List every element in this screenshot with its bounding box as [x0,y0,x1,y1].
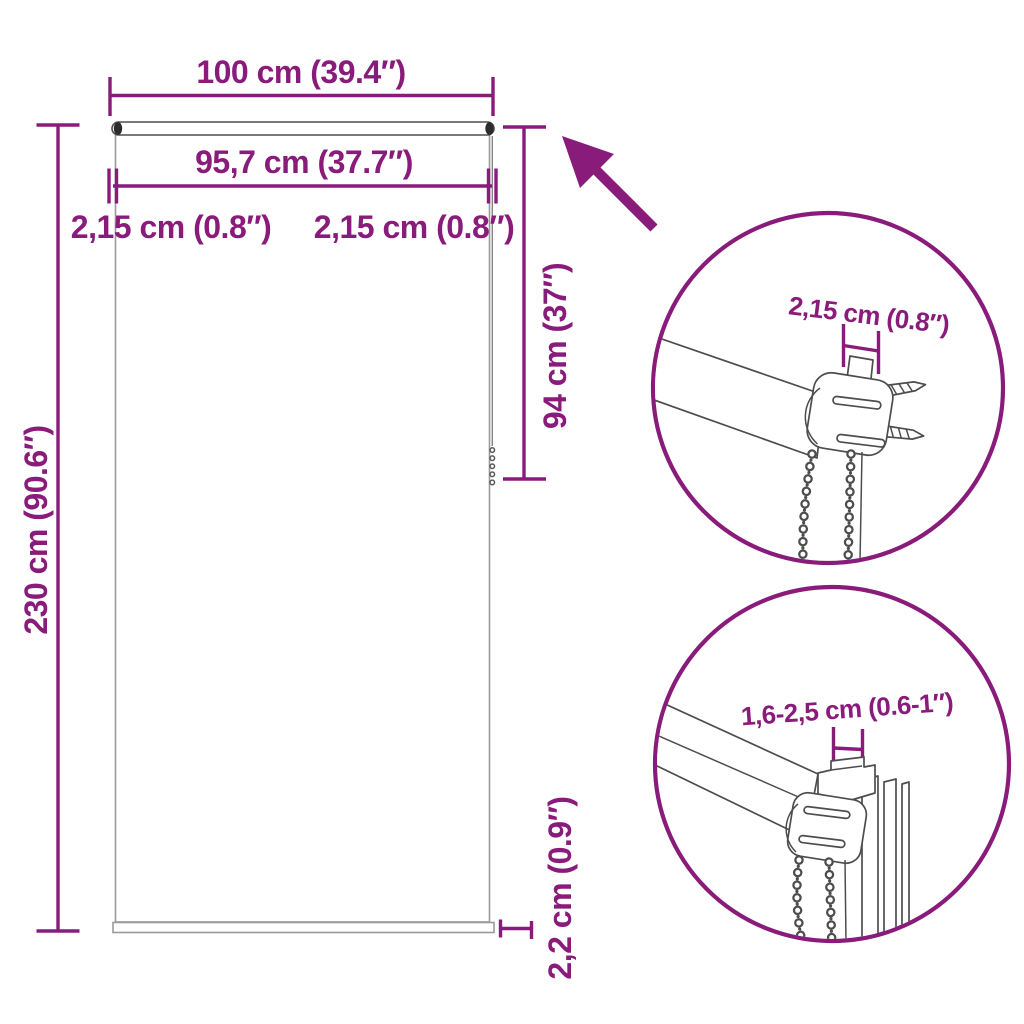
diagram-canvas [0,0,1024,1024]
cord-line [860,452,862,562]
dim-label-total-height: 230 cm (90.6″) [20,425,52,634]
dim-label-drop-height: 94 cm (37″) [539,263,571,429]
mount-bracket [785,791,868,866]
detail-circle-bottom [624,587,1009,950]
cord-line [845,860,846,942]
bead-chain-left [803,454,812,562]
bead-chain-right [829,862,832,948]
fabric-panel [116,134,490,922]
tube-end-cap-left [114,122,122,135]
dim-label-total-width: 100 cm (39.4″) [196,56,405,88]
tube-end-cap-right [485,122,493,135]
clamp-hook [818,757,875,801]
dim-label-left-offset: 2,15 cm (0.8″) [71,211,271,243]
bottom-bar [113,923,494,933]
dim-label-bottom-bar: 2,2 cm (0.9″) [544,796,576,979]
window-frame [862,776,909,950]
top-tube [112,122,494,135]
dim-label-fabric-width: 95,7 cm (37.7″) [195,146,413,178]
bead-chain-right [848,454,851,562]
detail-pointer-arrow [562,136,654,228]
dim-label-right-offset: 2,15 cm (0.8″) [314,211,514,243]
bead-chain-left [797,860,803,948]
product-dimension-diagram: 100 cm (39.4″) 95,7 cm (37.7″) 2,15 cm (… [0,0,1024,1024]
dim-bottom-bar [501,920,532,940]
detail-circle-top [626,213,1003,563]
